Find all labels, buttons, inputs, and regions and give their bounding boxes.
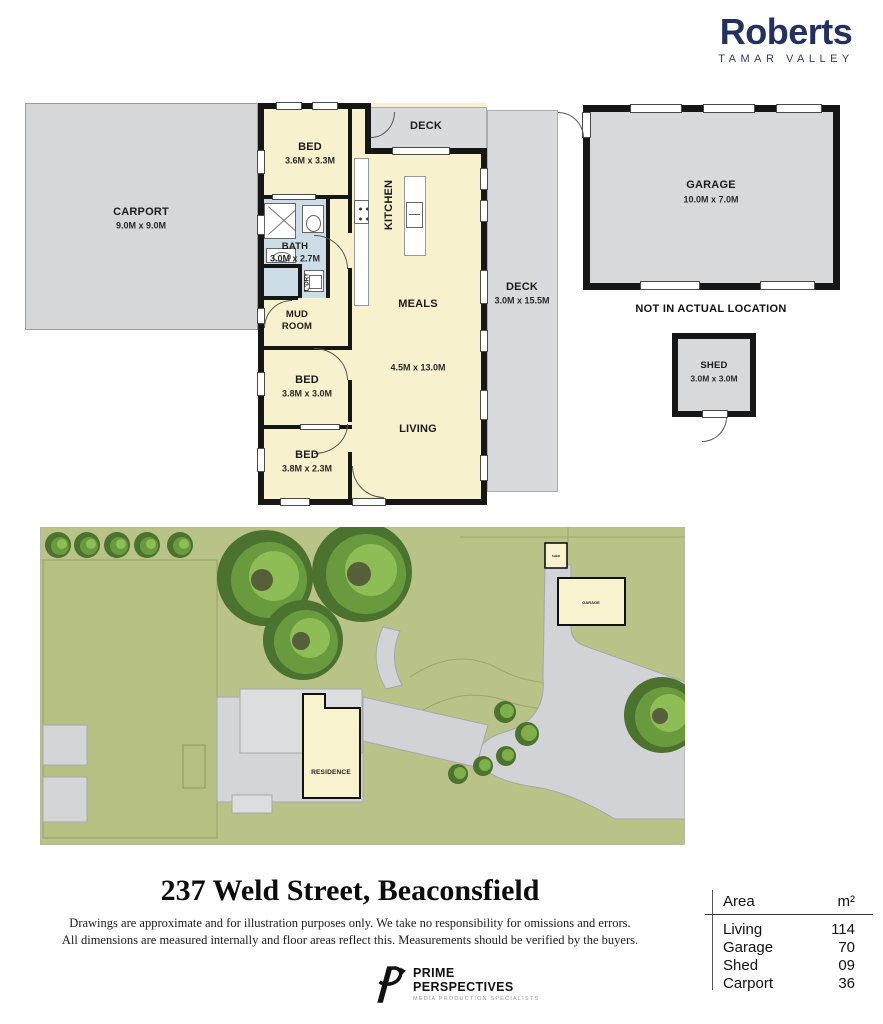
table-rule-vertical [712,890,713,990]
area-table: Area m² Living 114 Garage 70 Shed 09 Car… [695,885,880,997]
living-label: LIVING [399,423,437,437]
table-row-label: Shed [723,957,758,974]
sink-icon [406,202,423,228]
shed-site-label: SHED [552,554,561,558]
tree-icon [263,600,343,680]
bath-label: BATH [282,241,308,253]
stove-icon [354,200,369,224]
window [280,498,310,506]
window [480,168,488,190]
deck-right-label: DECK [506,281,538,295]
table-row-label: Living [723,921,762,938]
brand-logo: Roberts TAMAR VALLEY [700,14,872,65]
producer-name-2: PERSPECTIVES [413,980,539,994]
page-title: 237 Weld Street, Beaconsfield [0,874,700,908]
table-row-value: 70 [795,939,855,956]
site-plan: RESIDENCE GARAGE SHED [40,527,685,845]
garage-dims: 10.0M x 7.0M [683,194,738,205]
bed3-label: BED [295,449,319,463]
window [257,372,265,396]
door-arc [702,417,727,442]
wall [348,195,352,233]
residence-building [303,694,360,798]
window [640,281,700,290]
bed3-dims: 3.8M x 2.3M [282,463,332,474]
bed1-dims: 3.6M x 3.3M [285,155,335,166]
window [776,104,822,113]
table-header-unit: m² [795,893,855,910]
garage-label: GARAGE [686,179,735,193]
disclaimer-line-2: All dimensions are measured internally a… [0,932,700,949]
outbuilding-pad [43,725,87,765]
garage-site-label: GARAGE [582,600,600,605]
window [480,200,488,222]
wall [348,452,352,499]
tree-row [45,532,193,558]
carport-label: CARPORT [113,206,169,220]
wall [264,346,352,350]
window [630,104,682,113]
residence-site-label: RESIDENCE [311,769,351,776]
table-row-value: 114 [795,921,855,938]
window [703,104,755,113]
door-arc [558,112,584,138]
outbuilding-pad [43,777,87,822]
kitchen-counter [354,158,369,306]
deck-top-label: DECK [410,120,442,134]
table-header-area: Area [723,893,755,910]
window [392,147,450,155]
table-row-label: Garage [723,939,773,956]
brand-tagline: TAMAR VALLEY [700,53,872,65]
carport-dims: 9.0M x 9.0M [116,220,166,231]
laundry-label: L'DRY [304,273,312,292]
wall [348,268,352,348]
window [257,448,265,472]
bed1-label: BED [298,141,322,155]
disclaimer-line-1: Drawings are approximate and for illustr… [0,915,700,932]
residence-pad [232,795,272,813]
window [480,390,488,420]
window [480,455,488,481]
mudroom-label-2: ROOM [282,321,312,333]
wall [348,380,352,422]
producer-name-1: PRIME [413,966,539,980]
window [312,102,338,110]
flyer-page: Roberts TAMAR VALLEY CARPORT 9.0M x 9.0M… [0,0,883,1024]
wall [264,296,298,300]
window [760,281,815,290]
producer-tagline: MEDIA PRODUCTION SPECIALISTS [413,996,539,1002]
window [276,102,302,110]
table-rule-horizontal [705,914,873,915]
table-row-label: Carport [723,975,773,992]
bed2-label: BED [295,374,319,388]
shed-label: SHED [700,360,727,372]
producer-logo-icon [363,962,407,1006]
shower-icon [264,203,296,239]
wall [348,109,352,195]
kitchen-label: KITCHEN [383,180,397,230]
meals-label: MEALS [398,298,438,312]
window [352,498,386,506]
deck-right-dims: 3.0M x 15.5M [494,295,549,306]
producer-logo: PRIME PERSPECTIVES MEDIA PRODUCTION SPEC… [363,962,543,1006]
table-row-value: 36 [795,975,855,992]
bath-dims: 3.0M x 2.7M [270,253,320,264]
wall [298,264,302,298]
table-row-value: 09 [795,957,855,974]
brand-name: Roberts [700,14,872,50]
window [272,194,316,200]
garage-note: NOT IN ACTUAL LOCATION [635,303,786,317]
shed-dims: 3.0M x 3.0M [690,374,737,385]
mudroom-label-1: MUD [286,309,308,321]
window [257,150,265,174]
window [480,270,488,304]
toilet-icon [302,205,324,233]
window [480,330,488,352]
living-dims: 4.5M x 13.0M [390,362,445,373]
bed2-dims: 3.8M x 3.0M [282,388,332,399]
